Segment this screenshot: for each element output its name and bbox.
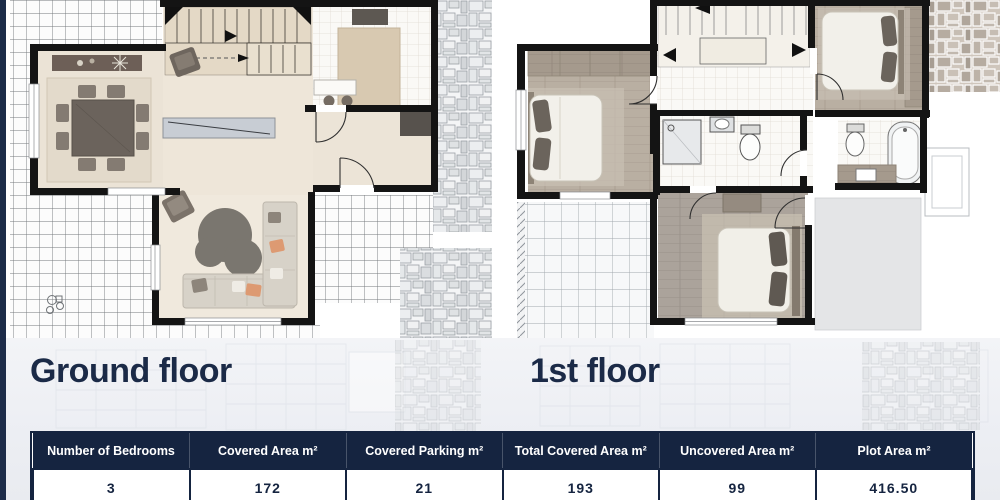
first-floor-title: 1st floor: [530, 352, 660, 391]
area-summary-table: Number of Bedrooms Covered Area m² Cover…: [32, 433, 973, 500]
bed-left: [528, 88, 624, 186]
property-floorplan-sheet: Ground floor 1st floor Number of Bedroom…: [0, 0, 1000, 500]
header-total-covered: Total Covered Area m²: [503, 433, 660, 469]
value-plot-area: 416.50: [816, 469, 973, 500]
toilet-tank: [741, 125, 760, 134]
first-floor-plan: [516, 0, 1000, 338]
value-covered-area: 172: [190, 469, 347, 500]
tv-sideboard: [163, 118, 275, 138]
toilet: [740, 134, 760, 160]
stool: [342, 96, 353, 107]
sideboard: [52, 55, 142, 71]
header-uncovered: Uncovered Area m²: [659, 433, 816, 469]
table-value-row: 3 172 21 193 99 416.50: [33, 469, 972, 500]
cooker-hood: [352, 9, 388, 25]
value-covered-parking: 21: [346, 469, 503, 500]
dresser: [723, 194, 761, 212]
value-bedrooms: 3: [33, 469, 190, 500]
staircase: [658, 2, 810, 67]
wardrobe: [528, 50, 654, 76]
fridge: [400, 110, 432, 136]
header-covered-parking: Covered Parking m²: [346, 433, 503, 469]
toilet-tank: [847, 124, 864, 132]
toilet: [846, 132, 864, 156]
floor-plans-drawing: [0, 0, 1000, 345]
stool: [324, 96, 335, 107]
stone-path: [928, 0, 1000, 92]
tub-ledge: [925, 148, 969, 216]
balcony-tiles: [524, 202, 654, 338]
value-uncovered: 99: [659, 469, 816, 500]
value-total-covered: 193: [503, 469, 660, 500]
table-header-row: Number of Bedrooms Covered Area m² Cover…: [33, 433, 972, 469]
header-plot-area: Plot Area m²: [816, 433, 973, 469]
bed-topright: [818, 8, 910, 100]
roof-terrace: [815, 198, 921, 330]
header-bedrooms: Number of Bedrooms: [33, 433, 190, 469]
ground-floor-title: Ground floor: [30, 352, 232, 391]
header-covered-area: Covered Area m²: [190, 433, 347, 469]
navy-edge-stripe: [0, 0, 6, 500]
kitchen-table: [314, 80, 356, 95]
balcony-hatch-edge: [517, 202, 525, 338]
ground-floor-plan: [10, 0, 492, 338]
